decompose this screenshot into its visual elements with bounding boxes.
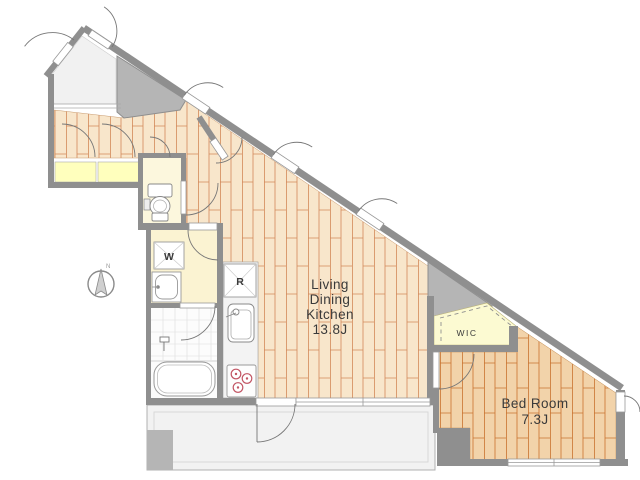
stove-icon	[227, 365, 256, 397]
ldk-label-line3: Kitchen	[306, 307, 354, 322]
compass-icon: N	[88, 264, 114, 297]
wic-label: WIC	[456, 328, 477, 338]
bedroom-label: Bed Room	[502, 396, 569, 411]
ldk-balcony-window	[296, 398, 430, 406]
closet-2	[98, 162, 140, 182]
washing-machine-label: W	[164, 251, 174, 263]
entrance-step-lines	[54, 104, 121, 108]
floor-plan-page: N Living Dining Kitchen 13.8J Bed Room 7…	[0, 0, 640, 480]
kitchen-sink-icon	[226, 304, 254, 342]
bathtub-icon	[154, 362, 215, 396]
balcony-floor	[147, 405, 435, 470]
refrigerator-label: R	[236, 276, 244, 288]
closet-1	[55, 162, 96, 182]
ldk-label-line1: Living	[311, 277, 349, 292]
floor-plan-drawing: N Living Dining Kitchen 13.8J Bed Room 7…	[0, 0, 640, 480]
compass-north-label: N	[106, 264, 110, 270]
bedroom-area-label: 7.3J	[521, 412, 548, 427]
washbasin-icon	[152, 272, 181, 302]
bedroom-bottom-window	[508, 459, 600, 466]
balcony-pillar	[147, 430, 173, 470]
ldk-label-line2: Dining	[310, 292, 351, 307]
ldk-area-label: 13.8J	[312, 322, 347, 337]
